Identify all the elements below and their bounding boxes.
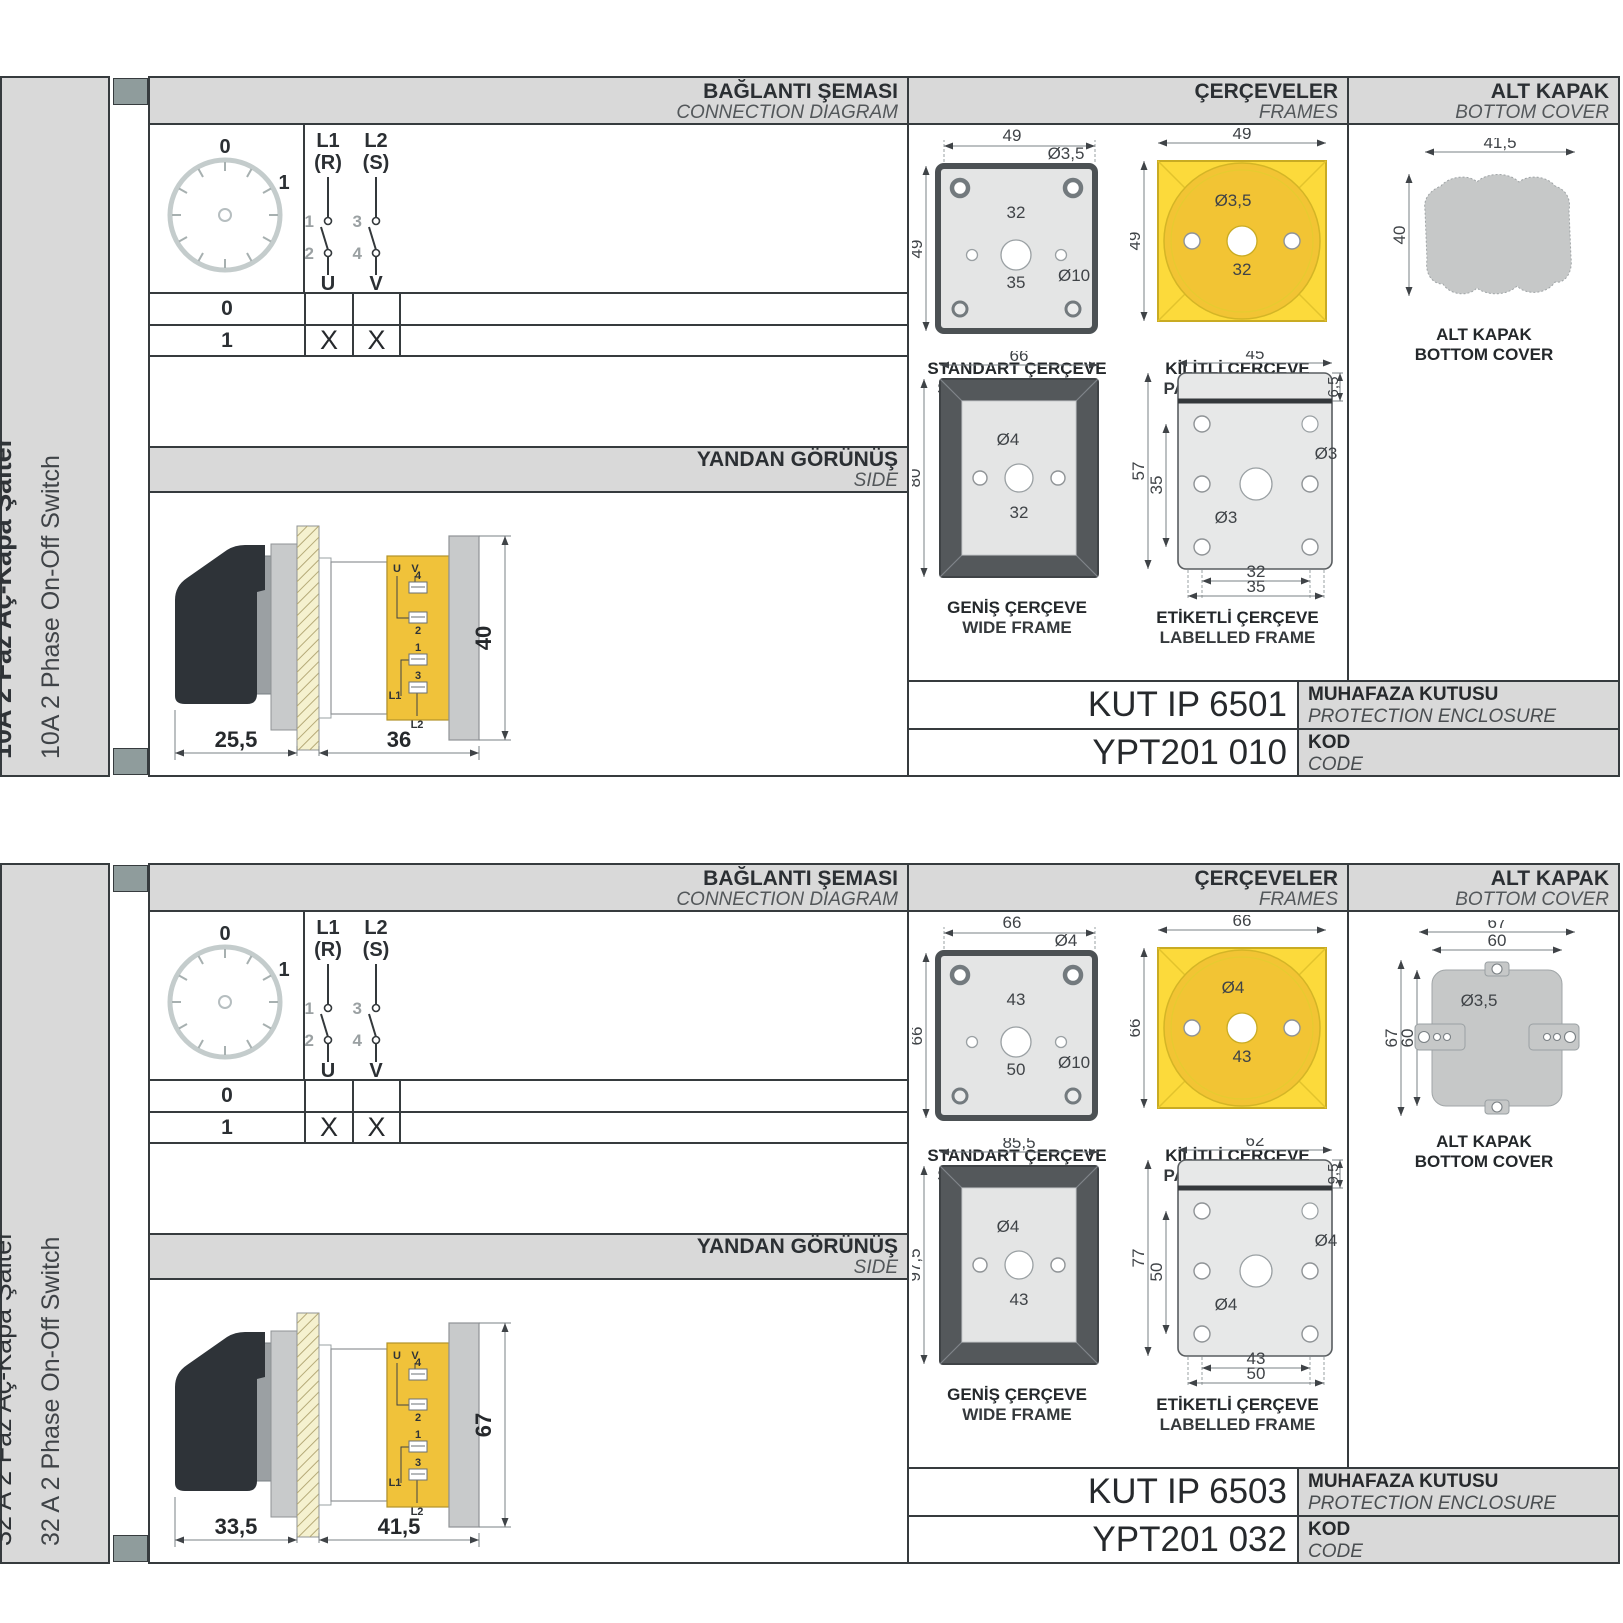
contact-1: 1 xyxy=(305,999,314,1018)
dim-w: 66 xyxy=(1233,915,1252,930)
side-view-drawing: U V 4 2 1 3 L1 L2 xyxy=(165,1285,810,1561)
dim-h2: 50 xyxy=(1147,1263,1166,1282)
header-title-tr: ÇERÇEVELER xyxy=(909,867,1338,890)
dim-span: 32 xyxy=(1010,503,1029,522)
frame-caption: GENİŞ ÇERÇEVE WIDE FRAME xyxy=(912,1385,1122,1425)
column-divider xyxy=(1347,125,1349,680)
dim-span: 43 xyxy=(1233,1047,1252,1066)
dim-span2: 35 xyxy=(1007,273,1026,292)
shaft-hole xyxy=(1227,1013,1257,1043)
wide-frame-drawing: 66 80 Ø4 32 xyxy=(912,351,1122,591)
bottom-cover-drawing: 41,5 40 xyxy=(1357,138,1612,318)
dim-h2: 60 xyxy=(1398,1029,1417,1048)
binding-mark-bottom xyxy=(113,1535,148,1562)
terminal-4: 4 xyxy=(415,1357,422,1369)
terminal-4: 4 xyxy=(415,570,422,582)
contact-2: 2 xyxy=(305,1031,314,1050)
label-tr: KOD xyxy=(1308,732,1618,754)
contact-4: 4 xyxy=(353,1031,363,1050)
cover-caption: ALT KAPAK BOTTOM COVER xyxy=(1350,1132,1618,1172)
pole1-out: U xyxy=(321,1060,335,1079)
pole2-label: L2 xyxy=(364,917,387,939)
binding-mark-top xyxy=(113,78,148,105)
pole1-phase: (R) xyxy=(314,939,342,961)
pole2-label: L2 xyxy=(364,130,387,152)
pole-2: L2 (S) 3 4 V xyxy=(353,917,390,1079)
dim-h: 66 xyxy=(1130,1019,1144,1038)
caption-en: WIDE FRAME xyxy=(912,1405,1122,1425)
switch-body xyxy=(331,562,387,714)
pole2-out: V xyxy=(369,1060,383,1079)
contact-1: 1 xyxy=(305,212,314,231)
table-cell xyxy=(306,1081,352,1111)
side-title-tr: YANDAN GÖRÜNÜŞ xyxy=(150,449,898,471)
dim-hole: Ø4 xyxy=(1055,931,1078,950)
shaft-hole xyxy=(1001,240,1031,270)
product-code: YPT201 032 xyxy=(909,1517,1297,1562)
labelled-frame-cell: 62 9,5 77 50 Ø4 Ø4 43 50 ETİKETLİ ÇERÇEV… xyxy=(1130,1138,1345,1420)
dim-h2: 35 xyxy=(1147,476,1166,495)
header-bottom-cover: ALT KAPAK BOTTOM COVER xyxy=(1347,78,1618,125)
table-border xyxy=(150,1142,907,1144)
pole1-label: L1 xyxy=(316,917,339,939)
dim-h: 77 xyxy=(1130,1249,1148,1268)
shaft-hole xyxy=(1001,1027,1031,1057)
dim-span: 43 xyxy=(1010,1290,1029,1309)
switch-body xyxy=(331,1349,387,1501)
panel-hatch-lines xyxy=(297,1313,319,1537)
standard-frame-drawing: 66 Ø4 66 43 Ø10 50 xyxy=(912,915,1122,1139)
dim-hole: Ø4 xyxy=(1222,978,1245,997)
mounting-plate xyxy=(271,1331,297,1517)
shaft-hole xyxy=(1240,468,1272,500)
terminal-2: 2 xyxy=(415,625,421,637)
dial-pos-0: 0 xyxy=(219,136,230,158)
pole-2: L2 (S) 3 4 V xyxy=(353,130,390,292)
spacer xyxy=(319,1345,331,1505)
terminal-l2: L2 xyxy=(411,719,424,731)
dim-h: 97,5 xyxy=(912,1248,924,1281)
labelled-frame-cell: 45 6,5 57 35 Ø3 Ø3 32 35 ETİKETLİ ÇERÇEV… xyxy=(1130,351,1345,633)
product-name-tr: 32 A 2 Faz Aç-Kapa Şalter xyxy=(0,1231,18,1546)
dim-top: 6,5 xyxy=(1325,377,1342,398)
table-cell xyxy=(354,294,399,324)
dim-span: 32 xyxy=(1007,203,1026,222)
dim-h: 57 xyxy=(1130,462,1148,481)
dim-w: 49 xyxy=(1233,128,1252,143)
pole-1: L1 (R) 1 2 U xyxy=(305,130,342,292)
dim-body: 36 xyxy=(387,727,411,752)
table-cell xyxy=(354,1081,399,1111)
header-title-tr: BAĞLANTI ŞEMASI xyxy=(150,867,898,890)
standard-frame-drawing: 49 Ø3,5 49 32 Ø10 35 xyxy=(912,128,1122,352)
pole2-out: V xyxy=(369,273,383,292)
spacer xyxy=(319,558,331,718)
dim-front: 33,5 xyxy=(215,1514,258,1539)
shaft-hole xyxy=(1005,1251,1033,1279)
product-sidebar: 32 A 2 Faz Aç-Kapa Şalter 32 A 2 Phase O… xyxy=(0,863,110,1564)
dim-hole2: Ø3 xyxy=(1215,508,1238,527)
dial-pos-1: 1 xyxy=(278,959,289,981)
padlock-frame-drawing: 49 49 Ø3,5 32 xyxy=(1130,128,1345,352)
dim-span2: 35 xyxy=(1247,577,1266,596)
side-title-tr: YANDAN GÖRÜNÜŞ xyxy=(150,1236,898,1258)
frame-caption: GENİŞ ÇERÇEVE WIDE FRAME xyxy=(912,598,1122,638)
dial-center xyxy=(219,996,231,1008)
terminal-1: 1 xyxy=(415,642,421,654)
code-label: KOD CODE xyxy=(1297,1517,1618,1562)
label-en: CODE xyxy=(1308,1541,1618,1562)
dim-span2: 50 xyxy=(1007,1060,1026,1079)
label-en: CODE xyxy=(1308,754,1618,775)
table-cell-x: X xyxy=(306,326,352,355)
header-title-en: CONNECTION DIAGRAM xyxy=(150,103,898,123)
section-content: BAĞLANTI ŞEMASI CONNECTION DIAGRAM ÇERÇE… xyxy=(148,76,1620,777)
label-en: PROTECTION ENCLOSURE xyxy=(1308,706,1618,727)
section-content: BAĞLANTI ŞEMASI CONNECTION DIAGRAM ÇERÇE… xyxy=(148,863,1620,1564)
terminal-l1: L1 xyxy=(389,690,402,702)
switch-knob xyxy=(175,545,265,704)
terminal-u: U xyxy=(393,563,401,575)
table-divider xyxy=(399,292,401,355)
enclosure-code: KUT IP 6501 xyxy=(909,682,1297,728)
caption-en: BOTTOM COVER xyxy=(1350,345,1618,365)
header-frames: ÇERÇEVELER FRAMES xyxy=(907,78,1347,125)
side-title-en: SIDE xyxy=(150,1258,898,1277)
caption-tr: ALT KAPAK xyxy=(1350,325,1618,345)
pole-1: L1 (R) 1 2 U xyxy=(305,917,342,1079)
dim-center: Ø10 xyxy=(1058,1053,1090,1072)
terminal-2: 2 xyxy=(415,1412,421,1424)
column-divider xyxy=(1347,912,1349,1467)
pole1-label: L1 xyxy=(316,130,339,152)
dim-w: 41,5 xyxy=(1483,138,1516,152)
pole1-out: U xyxy=(321,273,335,292)
product-name-en: 10A 2 Phase On-Off Switch xyxy=(37,455,66,759)
contact-3: 3 xyxy=(353,999,362,1018)
table-cell-x: X xyxy=(354,326,399,355)
dim-hole: Ø3,5 xyxy=(1460,991,1497,1010)
table-row-pos: 1 xyxy=(150,1113,304,1142)
label-tr: MUHAFAZA KUTUSU xyxy=(1308,1471,1618,1493)
dim-w: 66 xyxy=(1003,915,1022,932)
dim-w: 62 xyxy=(1246,1138,1265,1150)
pole1-phase: (R) xyxy=(314,152,342,174)
caption-tr: ALT KAPAK xyxy=(1350,1132,1618,1152)
wide-frame-cell: 66 80 Ø4 32 GENİŞ ÇERÇEVE WIDE FRAME xyxy=(912,351,1122,633)
dim-w: 45 xyxy=(1246,351,1265,363)
table-border xyxy=(150,355,907,357)
caption-en: LABELLED FRAME xyxy=(1130,1415,1345,1435)
dim-w2: 60 xyxy=(1487,931,1506,950)
side-view-header: YANDAN GÖRÜNÜŞ SIDE xyxy=(150,1233,907,1280)
table-row-pos: 0 xyxy=(150,294,304,324)
padlock-frame-drawing: 66 66 Ø4 43 xyxy=(1130,915,1345,1139)
contact-2: 2 xyxy=(305,244,314,263)
table-row-pos: 0 xyxy=(150,1081,304,1111)
labelled-frame-drawing: 62 9,5 77 50 Ø4 Ø4 43 50 xyxy=(1130,1138,1345,1388)
header-title-tr: ÇERÇEVELER xyxy=(909,80,1338,103)
product-sidebar: 10A 2 Faz Aç-Kapa Şalter 10A 2 Phase On-… xyxy=(0,76,110,777)
code-label: KOD CODE xyxy=(1297,730,1618,775)
product-name-en: 32 A 2 Phase On-Off Switch xyxy=(37,1237,66,1546)
dial-center xyxy=(219,209,231,221)
wide-frame-drawing: 85,5 97,5 Ø4 43 xyxy=(912,1138,1122,1378)
dim-h: 40 xyxy=(1390,226,1409,245)
column-divider xyxy=(907,912,909,1562)
switch-knob xyxy=(175,1332,265,1491)
header-title-tr: ALT KAPAK xyxy=(1349,867,1609,890)
header-connection-diagram: BAĞLANTI ŞEMASI CONNECTION DIAGRAM xyxy=(150,865,907,912)
dim-body: 41,5 xyxy=(378,1514,421,1539)
table-cell-x: X xyxy=(306,1113,352,1142)
caption-en: BOTTOM COVER xyxy=(1350,1152,1618,1172)
side-view-header: YANDAN GÖRÜNÜŞ SIDE xyxy=(150,446,907,493)
dim-span: 32 xyxy=(1233,260,1252,279)
dial-pos-1: 1 xyxy=(278,172,289,194)
shaft-hole xyxy=(1240,1255,1272,1287)
binding-mark-bottom xyxy=(113,748,148,775)
header-frames: ÇERÇEVELER FRAMES xyxy=(907,865,1347,912)
dim-span: 43 xyxy=(1007,990,1026,1009)
labelled-frame-drawing: 45 6,5 57 35 Ø3 Ø3 32 35 xyxy=(1130,351,1345,601)
header-bottom-cover: ALT KAPAK BOTTOM COVER xyxy=(1347,865,1618,912)
dim-hole: Ø3,5 xyxy=(1215,191,1252,210)
dim-hole: Ø4 xyxy=(997,1217,1020,1236)
dim-hole1: Ø4 xyxy=(1315,1231,1338,1250)
product-section-10a: 10A 2 Faz Aç-Kapa Şalter 10A 2 Phase On-… xyxy=(0,76,1623,777)
header-title-en: BOTTOM COVER xyxy=(1349,103,1609,123)
terminal-l1: L1 xyxy=(389,1477,402,1489)
dim-hole1: Ø3 xyxy=(1315,444,1338,463)
table-cell xyxy=(306,294,352,324)
dim-h: 49 xyxy=(912,240,926,259)
header-title-en: BOTTOM COVER xyxy=(1349,890,1609,910)
caption-en: LABELLED FRAME xyxy=(1130,628,1345,648)
table-divider xyxy=(399,1079,401,1142)
caption-en: WIDE FRAME xyxy=(912,618,1122,638)
cover-caption: ALT KAPAK BOTTOM COVER xyxy=(1350,325,1618,365)
product-code: YPT201 010 xyxy=(909,730,1297,775)
header-title-tr: ALT KAPAK xyxy=(1349,80,1609,103)
panel-hatch-lines xyxy=(297,526,319,750)
dim-span2: 50 xyxy=(1247,1364,1266,1383)
terminal-3: 3 xyxy=(415,1457,421,1469)
header-connection-diagram: BAĞLANTI ŞEMASI CONNECTION DIAGRAM xyxy=(150,78,907,125)
dim-w: 66 xyxy=(1010,351,1029,365)
pole2-phase: (S) xyxy=(363,152,390,174)
cover-shape xyxy=(1424,175,1571,294)
connection-diagram-drawing: 0 1 L1 (R) 1 2 U L2 (S) xyxy=(150,912,907,1079)
dim-w: 49 xyxy=(1003,128,1022,145)
enclosure-code: KUT IP 6503 xyxy=(909,1469,1297,1515)
enclosure-label: MUHAFAZA KUTUSU PROTECTION ENCLOSURE xyxy=(1297,1469,1618,1515)
frame-caption: ETİKETLİ ÇERÇEVE LABELLED FRAME xyxy=(1130,608,1345,648)
bottom-cover-cell: 41,5 40 ALT KAPAK BOTTOM COVER xyxy=(1350,138,1618,365)
dim-height: 40 xyxy=(471,626,496,650)
pole2-phase: (S) xyxy=(363,939,390,961)
table-cell-x: X xyxy=(354,1113,399,1142)
terminal-u: U xyxy=(393,1350,401,1362)
caption-tr: GENİŞ ÇERÇEVE xyxy=(912,598,1122,618)
terminal-3: 3 xyxy=(415,670,421,682)
dim-height: 67 xyxy=(471,1413,496,1437)
dim-top: 9,5 xyxy=(1325,1164,1342,1185)
header-title-en: FRAMES xyxy=(909,103,1338,123)
terminal-1: 1 xyxy=(415,1429,421,1441)
table-row-pos: 1 xyxy=(150,326,304,355)
dim-w: 85,5 xyxy=(1002,1138,1035,1152)
header-title-tr: BAĞLANTI ŞEMASI xyxy=(150,80,898,103)
caption-tr: ETİKETLİ ÇERÇEVE xyxy=(1130,608,1345,628)
mounting-plate xyxy=(271,544,297,730)
side-title-en: SIDE xyxy=(150,471,898,490)
contact-4: 4 xyxy=(353,244,363,263)
bottom-cover-cell: 67 60 67 60 Ø3,5 ALT KAPAK BOTTOM COVER xyxy=(1350,920,1618,1172)
dim-hole: Ø4 xyxy=(997,430,1020,449)
dim-center: Ø10 xyxy=(1058,266,1090,285)
header-title-en: FRAMES xyxy=(909,890,1338,910)
dim-hole: Ø3,5 xyxy=(1048,144,1085,163)
connection-diagram-drawing: 0 1 L1 (R) 1 2 U L2 (S) xyxy=(150,125,907,292)
shaft-hole xyxy=(1005,464,1033,492)
frame-caption: ETİKETLİ ÇERÇEVE LABELLED FRAME xyxy=(1130,1395,1345,1435)
product-section-32a: 32 A 2 Faz Aç-Kapa Şalter 32 A 2 Phase O… xyxy=(0,863,1623,1564)
label-tr: MUHAFAZA KUTUSU xyxy=(1308,684,1618,706)
dial-pos-0: 0 xyxy=(219,923,230,945)
caption-tr: GENİŞ ÇERÇEVE xyxy=(912,1385,1122,1405)
label-tr: KOD xyxy=(1308,1519,1618,1541)
product-name-tr: 10A 2 Faz Aç-Kapa Şalter xyxy=(0,437,18,759)
contact-3: 3 xyxy=(353,212,362,231)
shaft-hole xyxy=(1227,226,1257,256)
dim-hole2: Ø4 xyxy=(1215,1295,1238,1314)
header-title-en: CONNECTION DIAGRAM xyxy=(150,890,898,910)
caption-tr: ETİKETLİ ÇERÇEVE xyxy=(1130,1395,1345,1415)
label-en: PROTECTION ENCLOSURE xyxy=(1308,1493,1618,1514)
dim-h: 80 xyxy=(912,469,924,488)
dim-front: 25,5 xyxy=(215,727,258,752)
wide-frame-cell: 85,5 97,5 Ø4 43 GENİŞ ÇERÇEVE WIDE FRAME xyxy=(912,1138,1122,1420)
bottom-cover-drawing: 67 60 67 60 Ø3,5 xyxy=(1357,920,1612,1125)
column-divider xyxy=(907,125,909,775)
binding-mark-top xyxy=(113,865,148,892)
dim-h: 49 xyxy=(1130,232,1144,251)
side-view-drawing: U V 4 2 1 3 L1 L2 xyxy=(165,498,810,774)
dim-h: 66 xyxy=(912,1027,926,1046)
enclosure-label: MUHAFAZA KUTUSU PROTECTION ENCLOSURE xyxy=(1297,682,1618,728)
catalog-page: 10A 2 Faz Aç-Kapa Şalter 10A 2 Phase On-… xyxy=(0,0,1623,1623)
